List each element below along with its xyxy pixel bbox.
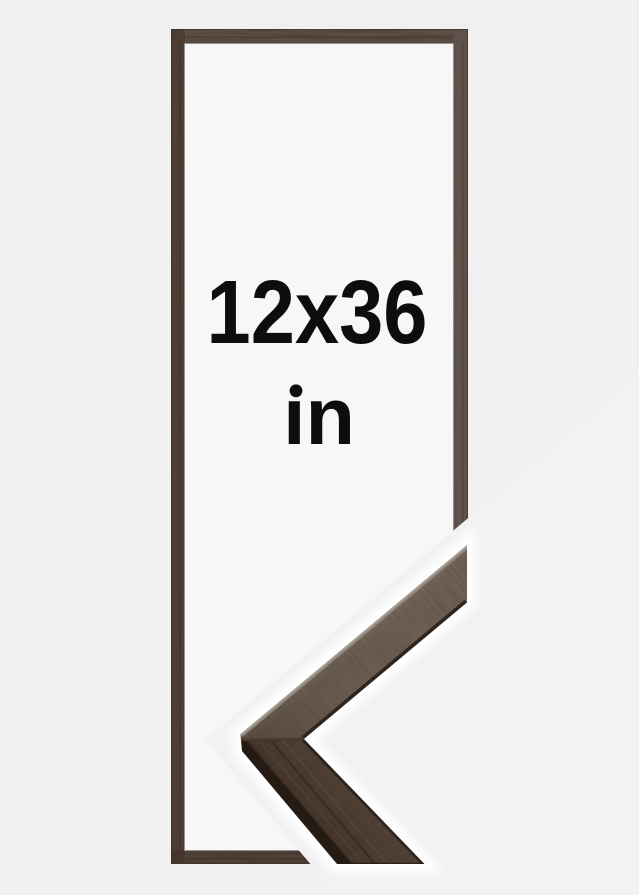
svg-text:12x36: 12x36 (207, 263, 428, 363)
